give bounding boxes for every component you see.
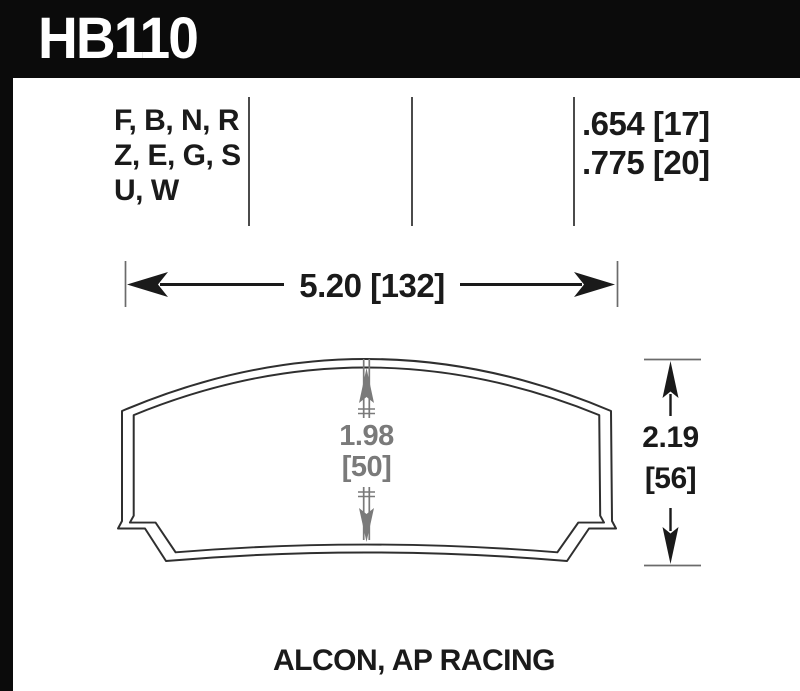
- overall-height-down-arrow: [663, 527, 679, 564]
- inner-height-label-inches: 1.98: [316, 420, 417, 453]
- header-bar: HB110: [0, 0, 800, 78]
- table-divider-line-3: [573, 97, 575, 226]
- left-border-stripe: [0, 0, 13, 691]
- overall-height-label-inches: 2.19: [620, 421, 721, 455]
- caliper-applications: ALCON, AP RACING: [28, 644, 800, 678]
- inner-height-down-arrow: [359, 508, 374, 542]
- width-dim-right-arrow: [574, 272, 615, 297]
- table-divider-line-2: [411, 97, 413, 226]
- thickness-value-1: .654 [17]: [582, 104, 710, 143]
- overall-height-label-mm: [56]: [620, 462, 721, 496]
- part-number: HB110: [38, 0, 197, 78]
- width-dim-left-arrow: [127, 272, 168, 297]
- inner-height-label-mm: [50]: [316, 451, 417, 484]
- inner-height-up-arrow: [359, 368, 374, 403]
- table-divider-line-1: [248, 97, 250, 226]
- compound-line-1: F, B, N, R: [114, 103, 241, 138]
- pad-thickness-values: .654 [17] .775 [20]: [582, 104, 710, 182]
- compound-line-3: U, W: [114, 173, 241, 208]
- width-dimension-label: 5.20 [132]: [272, 267, 472, 305]
- compound-line-2: Z, E, G, S: [114, 138, 241, 173]
- thickness-value-2: .775 [20]: [582, 143, 710, 182]
- compound-letters: F, B, N, R Z, E, G, S U, W: [114, 103, 241, 208]
- overall-height-up-arrow: [663, 361, 679, 398]
